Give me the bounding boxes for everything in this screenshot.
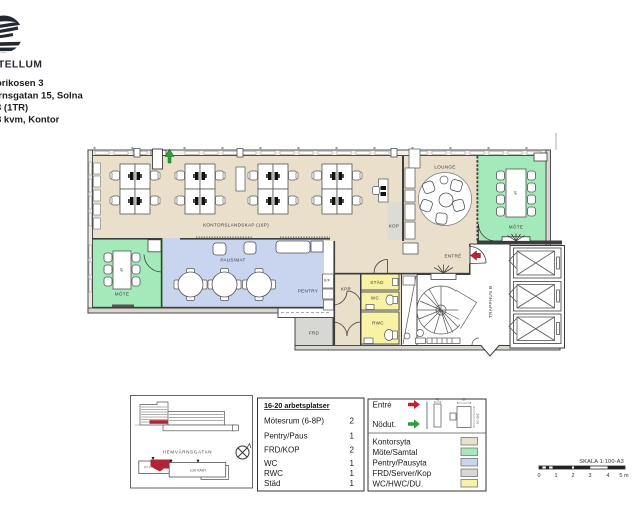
svg-text:Pentry/Pausyta: Pentry/Pausyta: [373, 459, 428, 468]
svg-text:8P: 8P: [513, 191, 517, 196]
svg-text:MÖTE: MÖTE: [115, 291, 129, 297]
svg-text:PAUS/MAT: PAUS/MAT: [220, 258, 245, 263]
svg-text:HEMVÄRNSGATAN: HEMVÄRNSGATAN: [163, 449, 212, 455]
svg-text:1: 1: [350, 479, 355, 488]
svg-text:3 (1TR): 3 (1TR): [0, 103, 28, 114]
svg-text:RWC: RWC: [372, 321, 384, 326]
svg-text:WC/HWC/DU.: WC/HWC/DU.: [373, 480, 424, 489]
svg-text:1: 1: [554, 473, 557, 479]
svg-text:KOP: KOP: [389, 224, 400, 229]
svg-text:1: 1: [350, 432, 355, 441]
svg-text:RWC: RWC: [264, 469, 283, 478]
svg-text:Möte/Samtal: Möte/Samtal: [373, 448, 418, 457]
svg-text:SKALA 1:100-A3: SKALA 1:100-A3: [579, 459, 624, 465]
svg-text:ENTRÉ: ENTRÉ: [444, 253, 461, 259]
svg-text:LGH RAMT: LGH RAMT: [190, 469, 207, 473]
svg-text:TELLUM: TELLUM: [0, 60, 42, 71]
svg-text:0: 0: [537, 473, 540, 479]
svg-text:FRD/Server/Kop: FRD/Server/Kop: [373, 469, 432, 478]
svg-text:WC: WC: [371, 296, 380, 301]
svg-text:MÖTE: MÖTE: [509, 224, 523, 230]
svg-text:K/F: K/F: [324, 279, 331, 283]
svg-text:16-20 arbetsplatser: 16-20 arbetsplatser: [264, 401, 330, 410]
svg-text:FRD/KOP: FRD/KOP: [264, 446, 300, 455]
svg-text:Entré: Entré: [373, 401, 393, 410]
svg-text:1: 1: [350, 469, 355, 478]
svg-text:Mötesrum (6-8P): Mötesrum (6-8P): [264, 417, 324, 426]
svg-text:KPR: KPR: [341, 287, 352, 292]
svg-text:Städ: Städ: [264, 479, 280, 488]
svg-text:2: 2: [350, 446, 355, 455]
svg-text:5 m: 5 m: [619, 473, 629, 479]
svg-text:2: 2: [571, 473, 574, 479]
svg-text:orikosen 3: orikosen 3: [0, 78, 44, 89]
svg-text:TRAPPHUS B: TRAPPHUS B: [488, 286, 493, 318]
svg-text:LOUNGE: LOUNGE: [434, 165, 455, 170]
svg-text:Kontorsyta: Kontorsyta: [373, 438, 412, 447]
svg-text:PENTRY: PENTRY: [298, 289, 318, 294]
svg-text:4: 4: [606, 473, 609, 479]
svg-text:KONTORSLANDSKAP (16P): KONTORSLANDSKAP (16P): [203, 223, 269, 228]
svg-text:6P: 6P: [119, 268, 123, 273]
svg-text:3: 3: [588, 473, 591, 479]
svg-text:2: 2: [350, 417, 355, 426]
svg-text:1: 1: [350, 459, 355, 468]
svg-text:45: 45: [436, 398, 440, 402]
svg-text:ärnsgatan 15, Solna: ärnsgatan 15, Solna: [0, 91, 83, 102]
svg-text:FRD: FRD: [309, 331, 320, 336]
svg-text:8 kvm, Kontor: 8 kvm, Kontor: [0, 115, 60, 126]
svg-text:STÄD: STÄD: [370, 279, 384, 285]
svg-text:Pentry/Paus: Pentry/Paus: [264, 432, 308, 441]
svg-text:140 cm: 140 cm: [476, 413, 480, 424]
svg-text:WC: WC: [264, 459, 278, 468]
svg-text:80: 80: [462, 398, 466, 402]
svg-text:Nödut.: Nödut.: [373, 420, 397, 429]
